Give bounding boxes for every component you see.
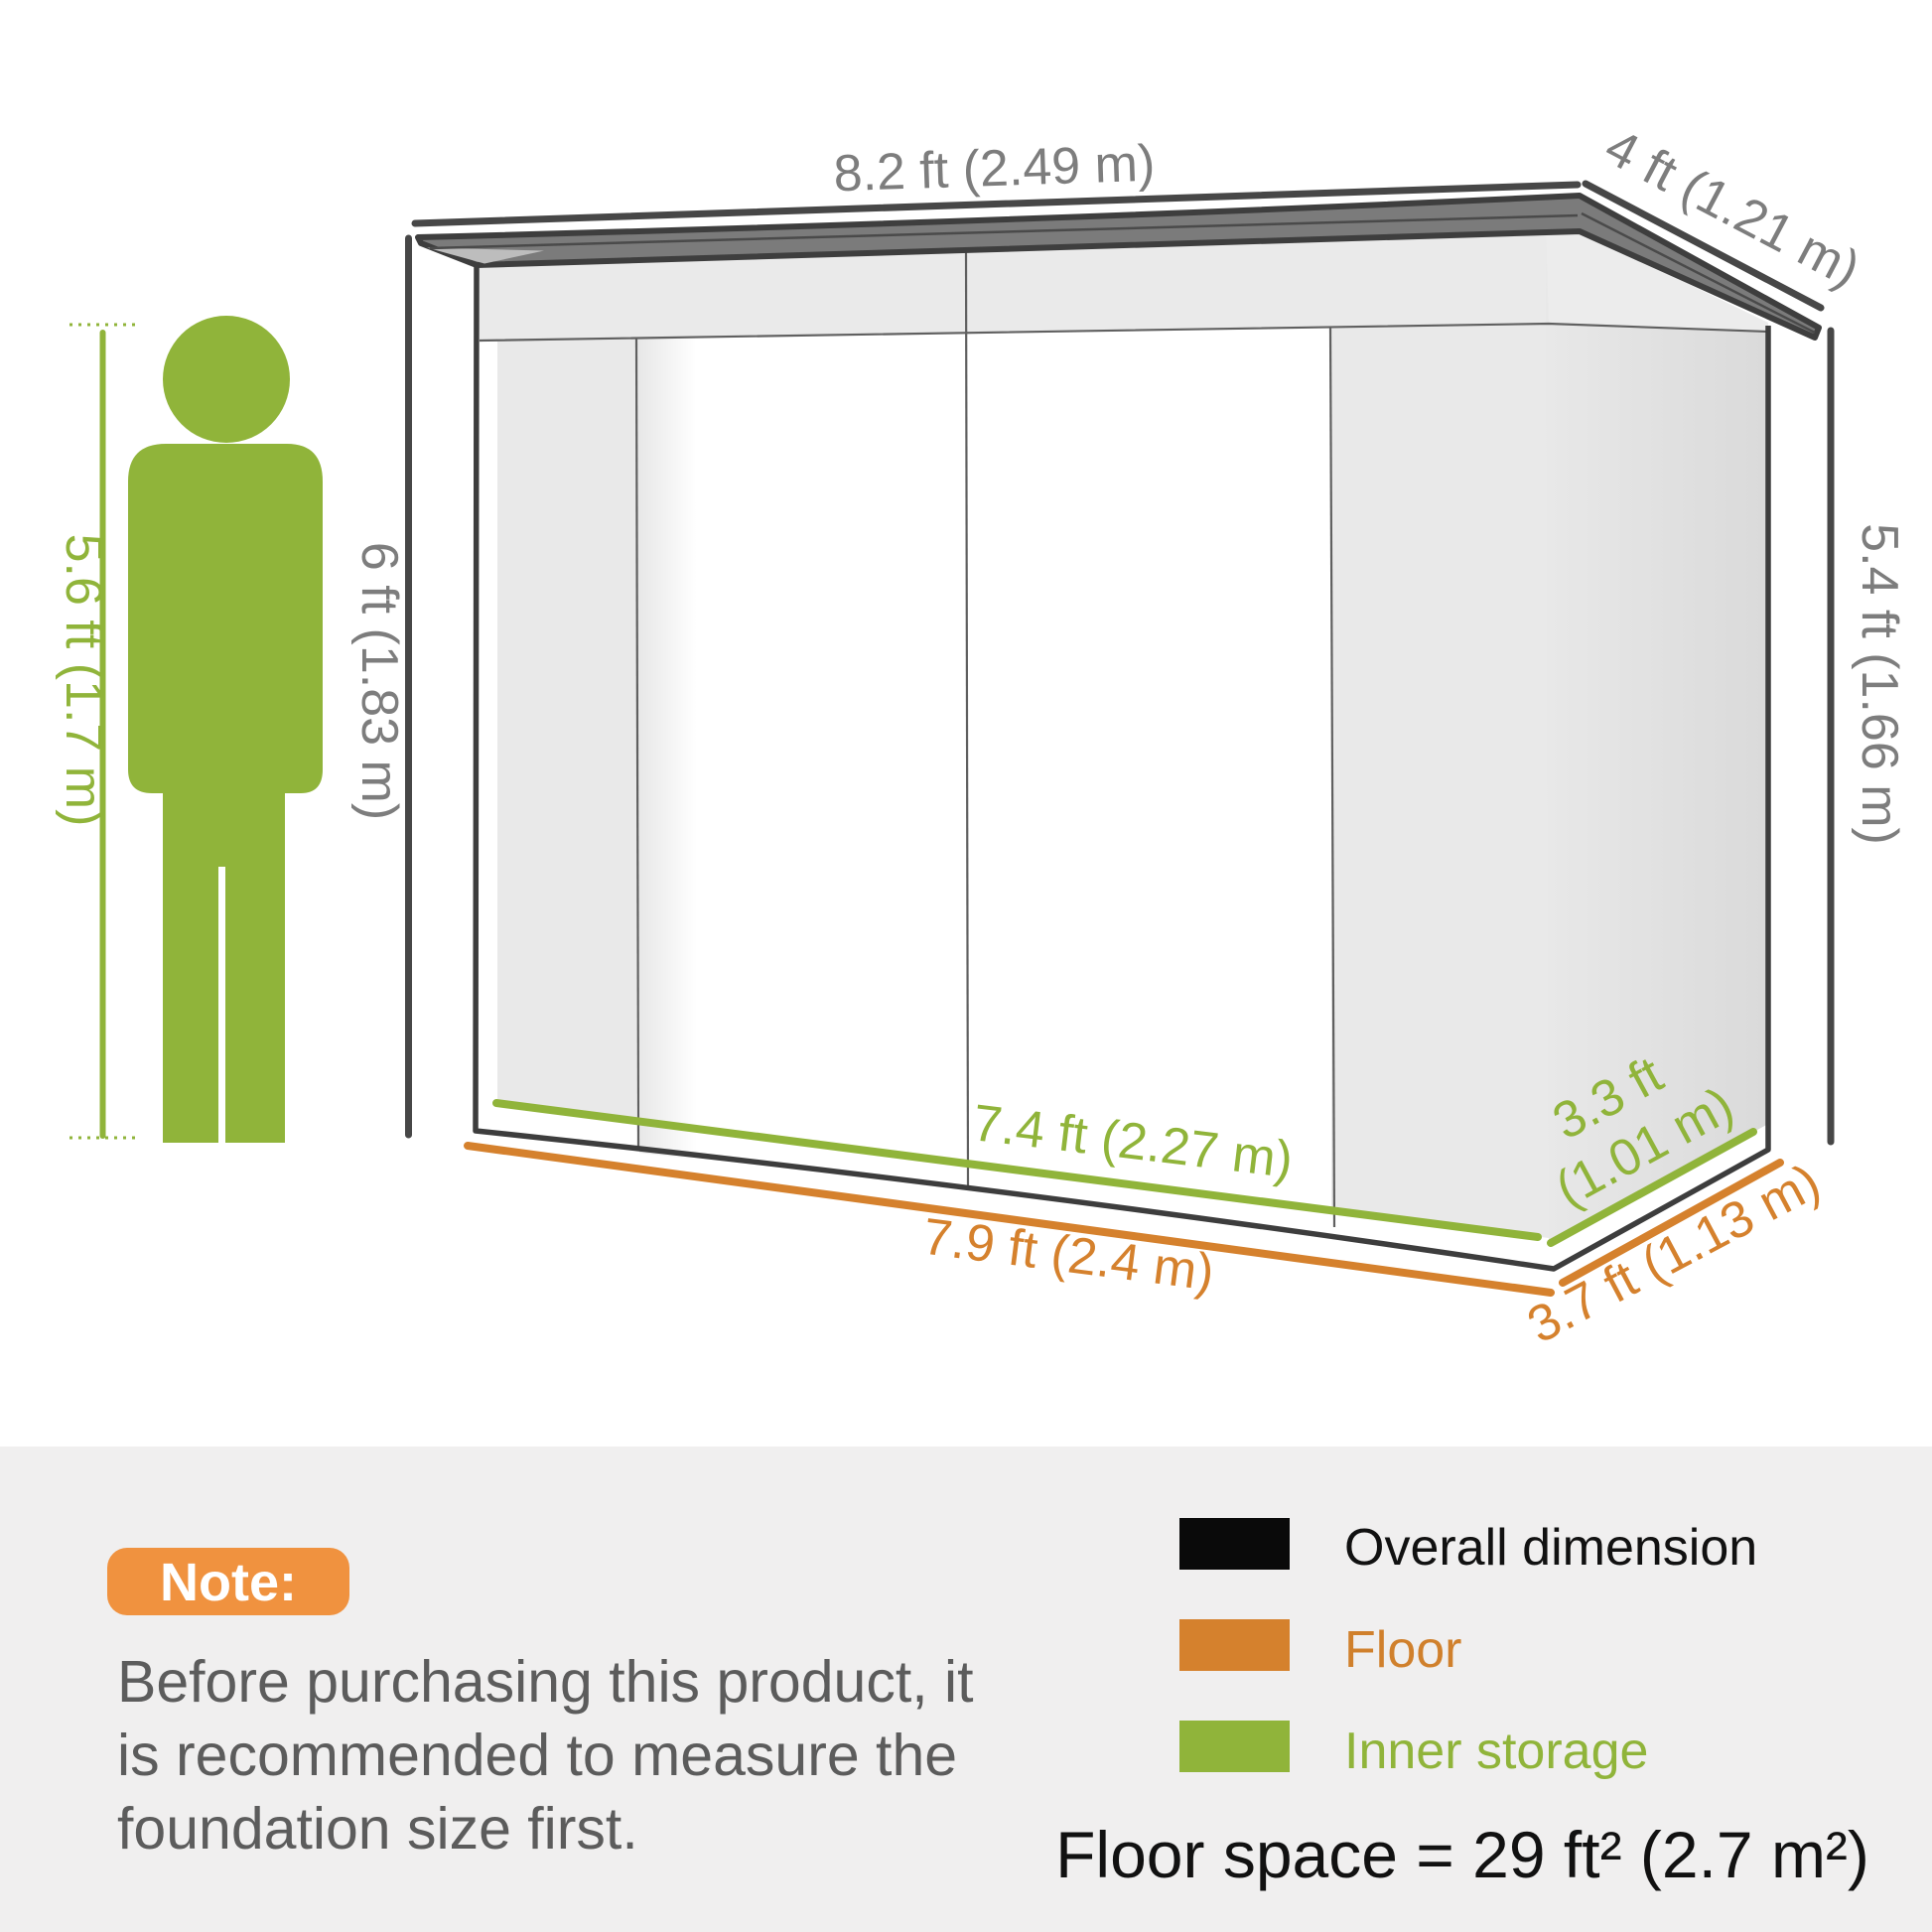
svg-text:Before purchasing this product: Before purchasing this product, it <box>117 1649 974 1715</box>
svg-text:Overall dimension: Overall dimension <box>1344 1519 1757 1577</box>
svg-text:5.4 ft (1.66 m): 5.4 ft (1.66 m) <box>1851 523 1908 845</box>
svg-text:is recommended to measure the: is recommended to measure the <box>117 1723 957 1788</box>
svg-text:8.2 ft (2.49 m): 8.2 ft (2.49 m) <box>833 135 1156 204</box>
svg-text:Inner storage: Inner storage <box>1344 1723 1648 1780</box>
svg-text:Note:: Note: <box>160 1553 297 1612</box>
svg-text:Floor space = 29 ft² (2.7 m²): Floor space = 29 ft² (2.7 m²) <box>1055 1818 1869 1891</box>
svg-text:Floor: Floor <box>1344 1621 1461 1679</box>
svg-text:5.6 ft (1.7 m): 5.6 ft (1.7 m) <box>55 534 112 827</box>
svg-text:6 ft (1.83 m): 6 ft (1.83 m) <box>350 542 408 820</box>
svg-text:foundation size first.: foundation size first. <box>117 1796 638 1862</box>
